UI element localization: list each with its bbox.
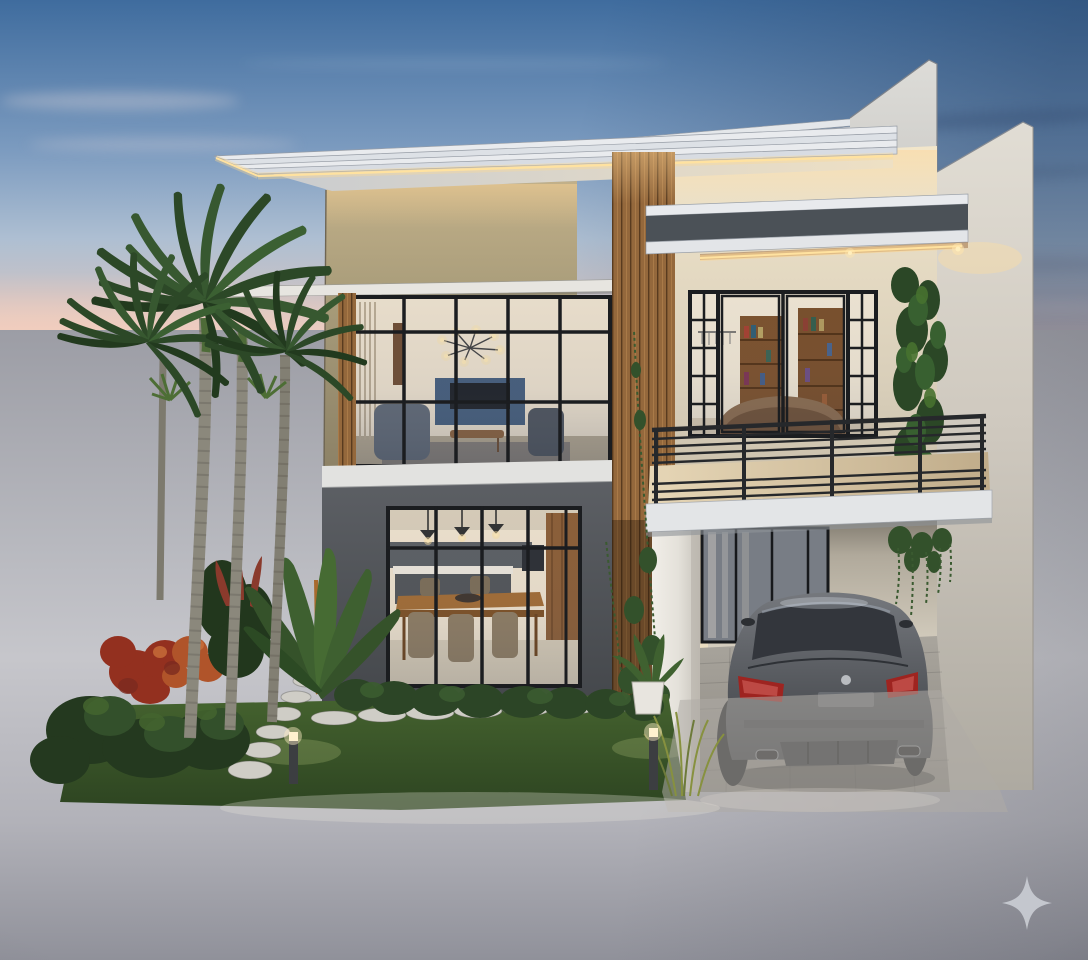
living-room-interior (356, 299, 608, 464)
house-scene (0, 0, 1088, 960)
street-glow (220, 792, 720, 824)
kitchen-window (386, 506, 582, 688)
balcony-french-doors (688, 290, 878, 438)
car-mirror (899, 620, 913, 628)
red-shrub (100, 636, 224, 704)
wood-strip-left (338, 293, 356, 470)
street-glow (700, 788, 940, 812)
entrance-canopy (646, 194, 968, 260)
living-room-window (352, 295, 612, 468)
door-mullions (690, 292, 876, 436)
car-roof-highlight (780, 597, 868, 609)
render-canvas (0, 0, 1088, 960)
car-mirror (741, 618, 755, 626)
kitchen-interior (390, 510, 578, 684)
sparkle-icon (1000, 874, 1054, 932)
car-emblem (841, 675, 851, 685)
